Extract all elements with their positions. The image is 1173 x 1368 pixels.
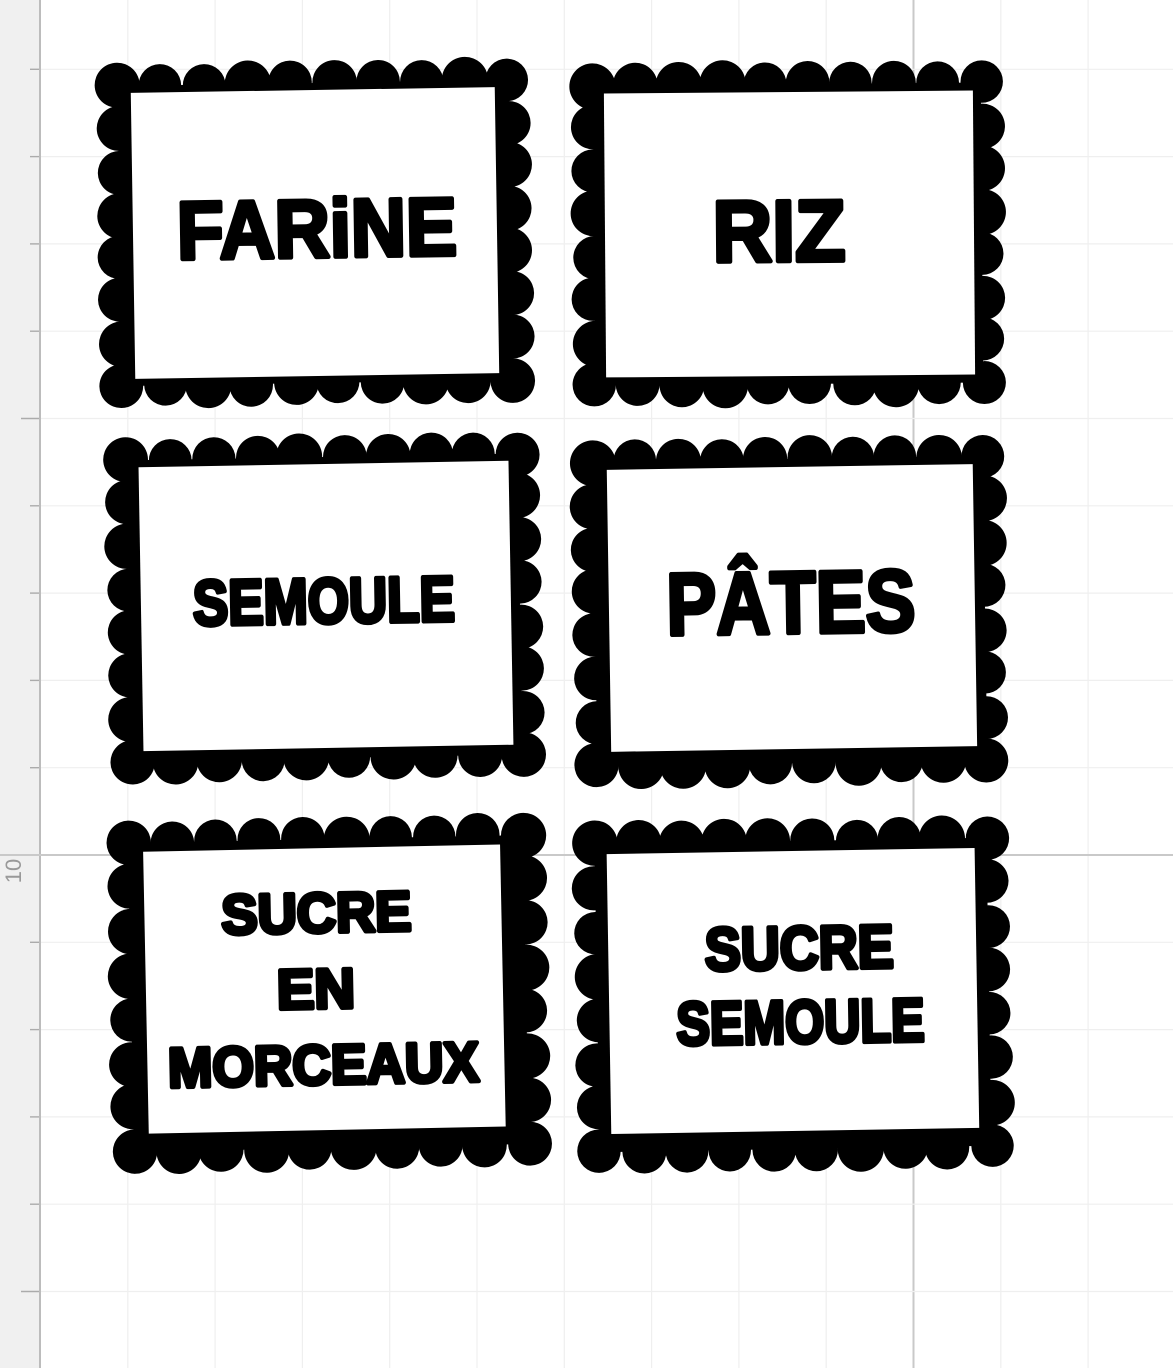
svg-text:RIZ: RIZ (712, 183, 846, 281)
svg-text:FARiNE: FARiNE (176, 182, 457, 277)
svg-text:PÂTES: PÂTES (666, 551, 917, 654)
svg-text:SUCRE: SUCRE (704, 912, 894, 983)
svg-text:SEMOULE: SEMOULE (192, 563, 455, 640)
svg-text:SUCRE: SUCRE (221, 879, 412, 946)
svg-text:EN: EN (276, 956, 355, 1021)
svg-text:10: 10 (1, 859, 26, 883)
svg-text:SEMOULE: SEMOULE (676, 986, 925, 1058)
svg-text:MORCEAUX: MORCEAUX (167, 1030, 479, 1099)
